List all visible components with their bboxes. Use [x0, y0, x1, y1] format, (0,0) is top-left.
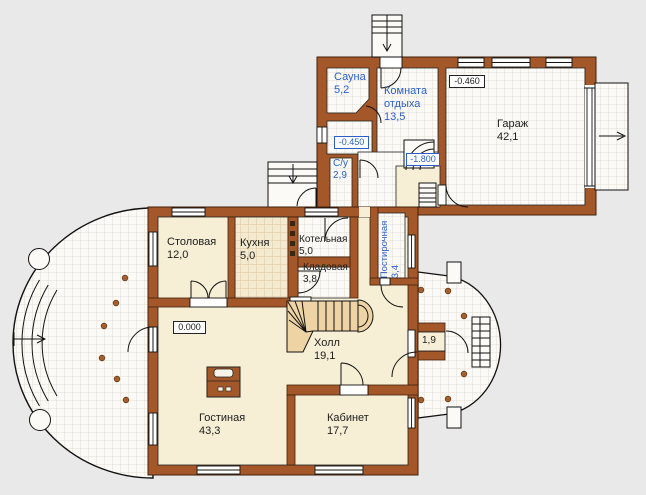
- level-marker-ground: 0.000: [173, 321, 206, 334]
- level-marker-garage: -0.460: [449, 75, 485, 88]
- garage-steps: [419, 183, 436, 207]
- room-label-vestibule: 1,9: [422, 335, 436, 347]
- porch-steps: [472, 317, 490, 367]
- room-label-laundry: Постирочная 3,4: [379, 208, 401, 278]
- terrace: [13, 208, 153, 478]
- room-label-study: Кабинет 17,7: [327, 412, 369, 438]
- room-label-kitchen: Кухня 5,0: [240, 237, 269, 263]
- floor-plan: Сауна 5,2 Комната отдыха 13,5 Гараж 42,1…: [0, 0, 646, 495]
- room-label-sauna: Сауна 5,2: [334, 71, 366, 97]
- room-label-boiler: Котельная 5,0: [299, 234, 347, 258]
- level-marker-lobby: -0.450: [334, 136, 369, 149]
- room-label-wc: С/у 2,9: [333, 158, 348, 182]
- room-label-rest-room: Комната отдыха 13,5: [384, 85, 427, 124]
- room-label-pantry: Кладовая 3,8: [303, 262, 348, 286]
- level-marker-basement: -1.800: [406, 153, 440, 166]
- fireplace: [207, 367, 240, 397]
- garage-wing: [268, 15, 628, 216]
- room-label-dining: Столовая 12,0: [167, 236, 216, 262]
- garage-door: [584, 83, 628, 190]
- room-label-hall: Холл 19,1: [314, 337, 340, 363]
- room-label-living: Гостиная 43,3: [199, 412, 245, 438]
- room-label-garage: Гараж 42,1: [497, 118, 528, 144]
